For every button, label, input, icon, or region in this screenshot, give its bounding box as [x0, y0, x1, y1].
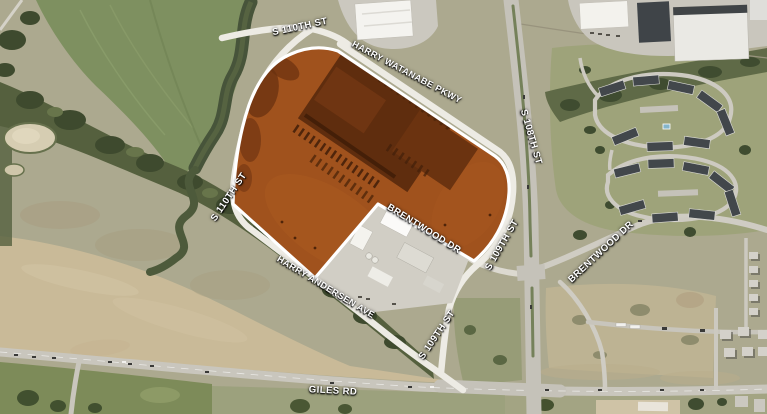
storage-tank — [372, 257, 378, 263]
industrial-building-1 — [579, 1, 628, 29]
industrial-building-2 — [637, 1, 671, 43]
basemap-svg — [0, 0, 767, 414]
north-building — [355, 0, 413, 40]
pool — [663, 124, 670, 129]
parked-truck — [616, 323, 626, 327]
aerial-map: S 110TH ST HARRY WATANABE PKWY S 110TH S… — [0, 0, 767, 414]
storage-tank — [366, 253, 372, 259]
parked-truck — [630, 325, 640, 329]
